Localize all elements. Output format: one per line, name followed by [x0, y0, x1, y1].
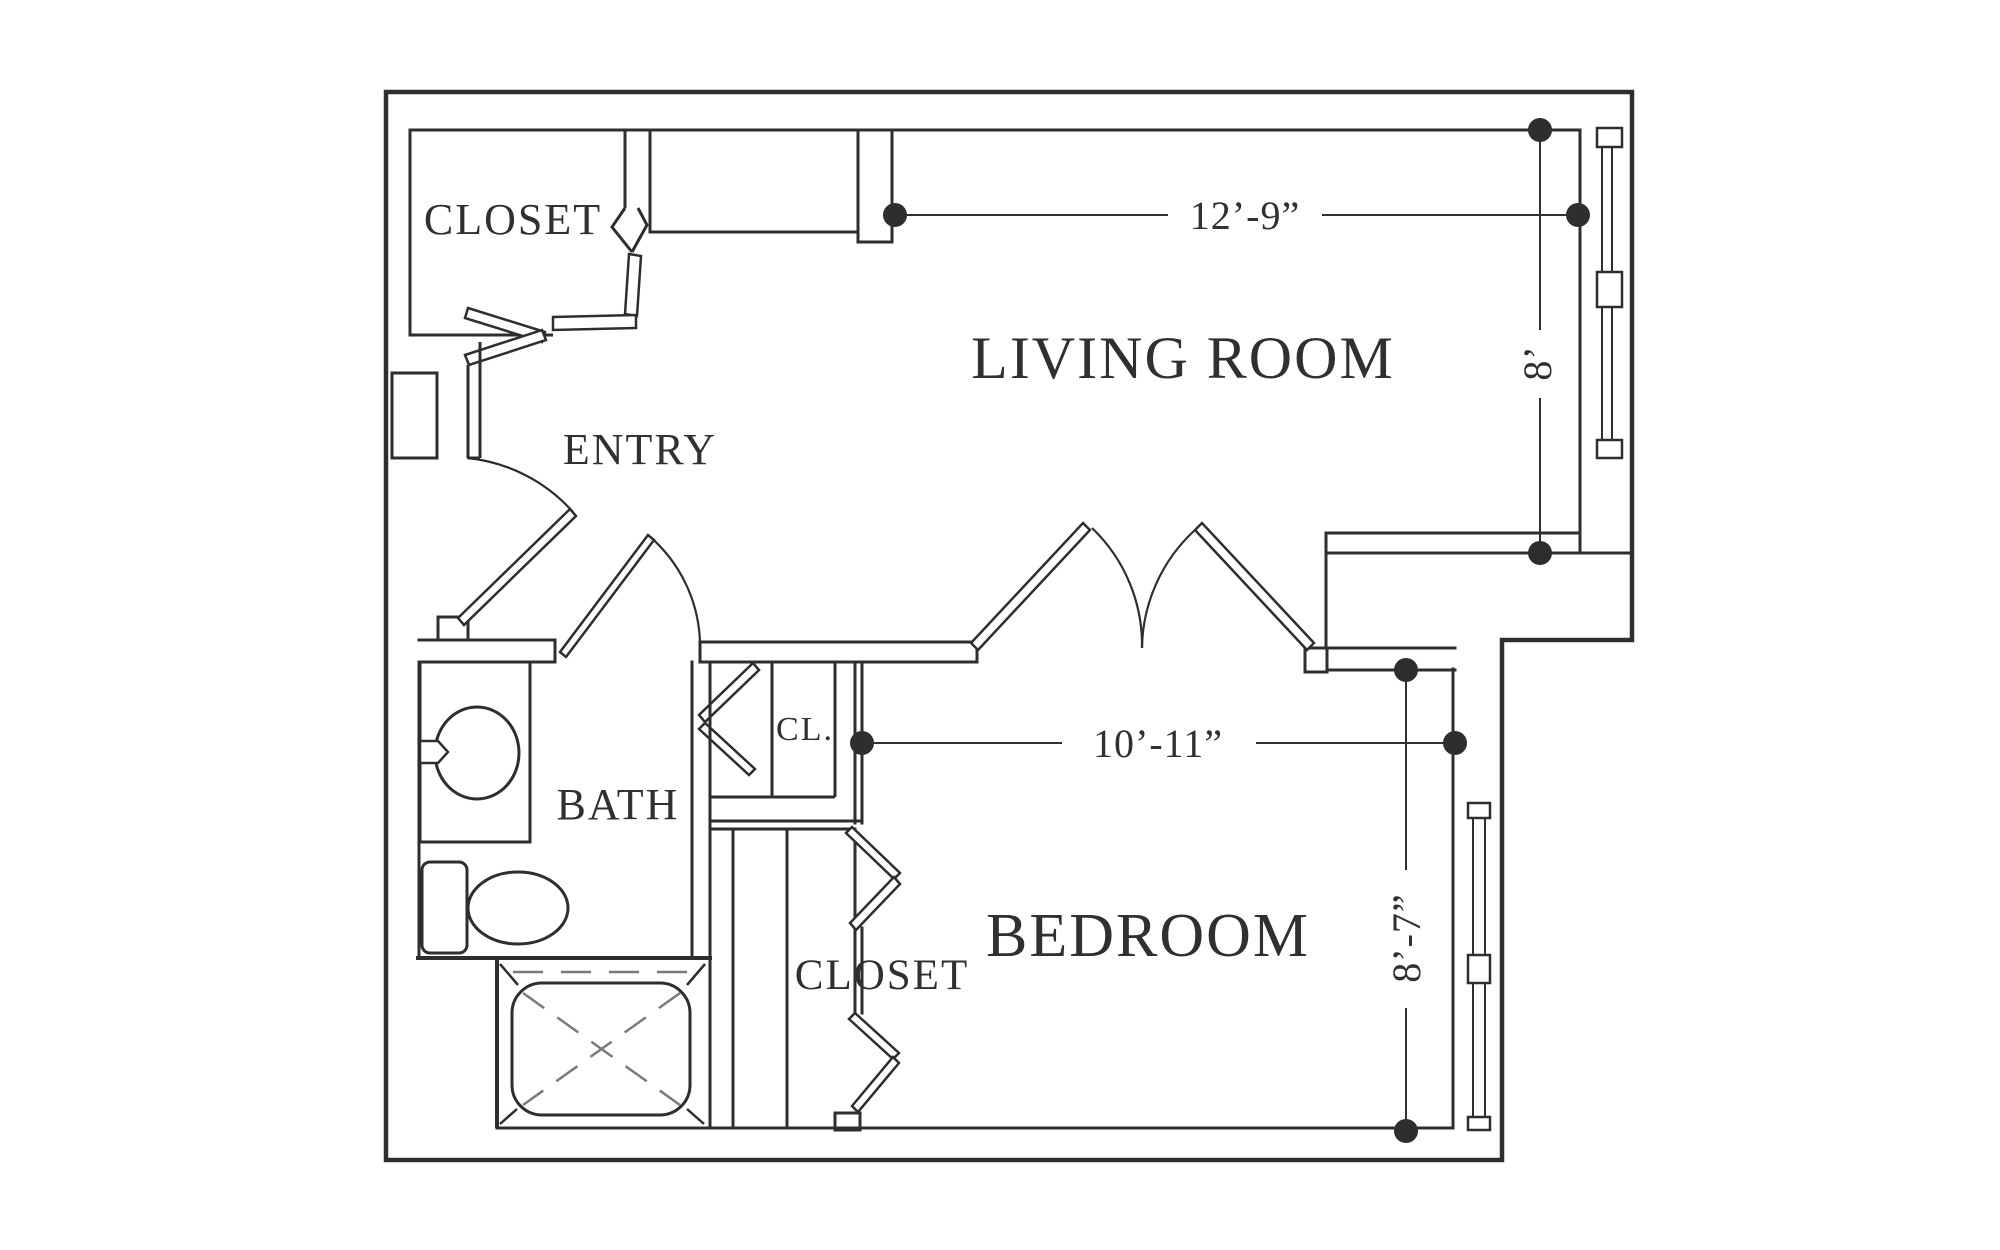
- walls: [386, 92, 1632, 1160]
- bedroom-north-wall: [1327, 648, 1455, 670]
- entry-label: ENTRY: [563, 425, 717, 474]
- bedroom-label: BEDROOM: [986, 902, 1310, 970]
- bedroom-closet-interior-lines: [733, 829, 787, 1128]
- bath-fixtures: [420, 662, 705, 1128]
- entry-niche: [650, 130, 858, 232]
- bedroom-window-icon: [1468, 803, 1490, 1130]
- entry-closet-shelf-bar: [553, 315, 636, 330]
- closet-bifold-bottom-panel1: [849, 1013, 899, 1059]
- floor-plan-drawing: CLOSET LIVING ROOM ENTRY BATH CL. CLOSET…: [0, 0, 2000, 1250]
- dim-bedroom-width-label: 10’-11”: [1093, 721, 1223, 766]
- bath-door-swing-arc: [648, 535, 700, 643]
- bath-label: BATH: [557, 780, 680, 829]
- dim-living-depth-label: 8’: [1515, 345, 1560, 380]
- entry-closet-structure: [392, 130, 647, 458]
- living-room-window-icon: [1597, 128, 1622, 458]
- living-south-wall: [1326, 533, 1632, 648]
- dim-living-width-label: 12’-9”: [1190, 193, 1300, 238]
- linen-closet-label: CL.: [776, 711, 834, 748]
- entry-wall-pier: [392, 373, 437, 458]
- french-door-right-jamb: [1305, 648, 1327, 672]
- entry-living-wall-stub: [858, 130, 892, 242]
- toilet-bowl-icon: [468, 872, 568, 944]
- hall-north-wall: [700, 642, 977, 662]
- french-door-left-arc: [1092, 528, 1142, 648]
- dim-living-depth-line: [1528, 118, 1552, 565]
- entry-closet-door-kink: [612, 208, 647, 252]
- dim-bedroom-depth-label: 8’-7”: [1384, 893, 1429, 982]
- bath-door-leaf: [560, 535, 654, 657]
- outer-wall: [386, 92, 1632, 1160]
- toilet-tank: [422, 862, 467, 953]
- floor-plan-page: CLOSET LIVING ROOM ENTRY BATH CL. CLOSET…: [0, 0, 2000, 1250]
- linen-closet-bifold-panel2: [699, 723, 755, 775]
- closet-bifold-top-panel2: [850, 877, 900, 930]
- windows: [1468, 128, 1622, 1130]
- labels: CLOSET LIVING ROOM ENTRY BATH CL. CLOSET…: [424, 193, 1560, 999]
- entry-closet-door-leaf: [625, 254, 641, 316]
- entry-door-leaf: [458, 509, 576, 625]
- closet-bifold-bottom-panel2: [852, 1057, 899, 1112]
- bath-north-wall: [419, 640, 555, 662]
- entry-door-swing-arc: [467, 458, 573, 512]
- shower-icon: [497, 960, 705, 1128]
- french-door-left-leaf: [971, 523, 1090, 650]
- living-room-label: LIVING ROOM: [971, 325, 1395, 391]
- entry-closet-label: CLOSET: [424, 195, 602, 244]
- bedroom-closet-label: CLOSET: [795, 952, 969, 999]
- french-door-right-leaf: [1195, 523, 1314, 650]
- french-door-right-arc: [1142, 530, 1195, 648]
- linen-closet-bifold-panel1: [699, 663, 759, 722]
